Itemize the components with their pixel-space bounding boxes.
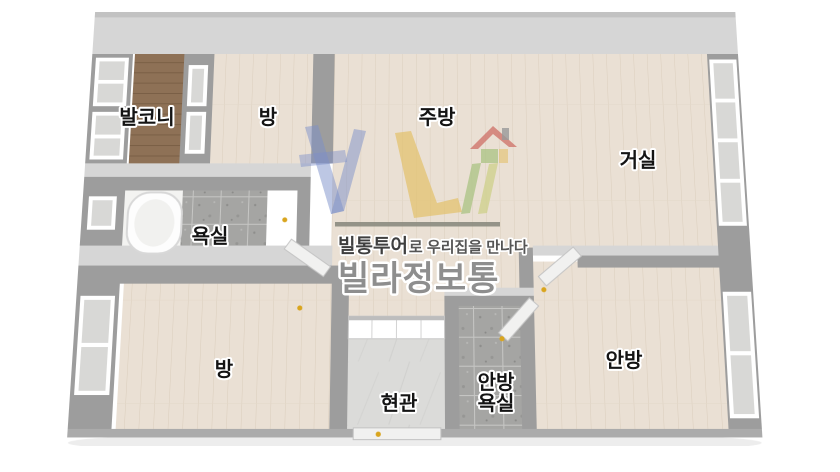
floor-bedroom-top <box>210 54 313 163</box>
entrance-door <box>353 428 441 440</box>
outer-wall-top-edge <box>95 12 736 17</box>
floorplan-image: 빌통투어로 우리집을 만나다 빌라정보통 발코니 방 주방 거실 욕실 방 현관… <box>0 0 840 472</box>
plan-perspective-wrapper <box>64 12 775 446</box>
shoe-cabinet <box>348 316 444 339</box>
floor-bathroom-tile <box>180 190 267 245</box>
floor-balcony <box>129 54 185 163</box>
floor-kitchen-living <box>331 54 718 248</box>
bathtub <box>126 192 183 253</box>
door-handle-icon <box>376 432 381 437</box>
floorplan-svg <box>64 12 775 446</box>
floor-master-bedroom <box>533 262 729 438</box>
